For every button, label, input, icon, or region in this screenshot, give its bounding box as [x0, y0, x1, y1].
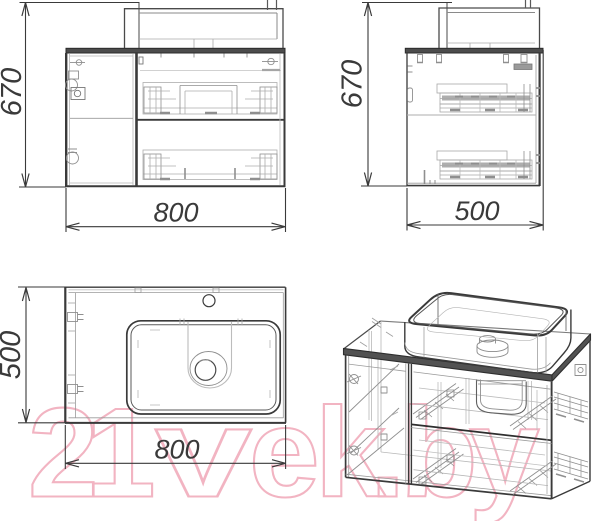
svg-text:670: 670 — [0, 68, 28, 116]
svg-text:800: 800 — [153, 198, 198, 228]
svg-text:500: 500 — [0, 331, 27, 379]
svg-text:e: e — [249, 382, 320, 521]
svg-text:670: 670 — [337, 60, 369, 108]
svg-text:500: 500 — [454, 196, 499, 226]
svg-text:1: 1 — [85, 382, 156, 521]
svg-text:800: 800 — [154, 435, 199, 465]
svg-text:y: y — [469, 382, 540, 521]
